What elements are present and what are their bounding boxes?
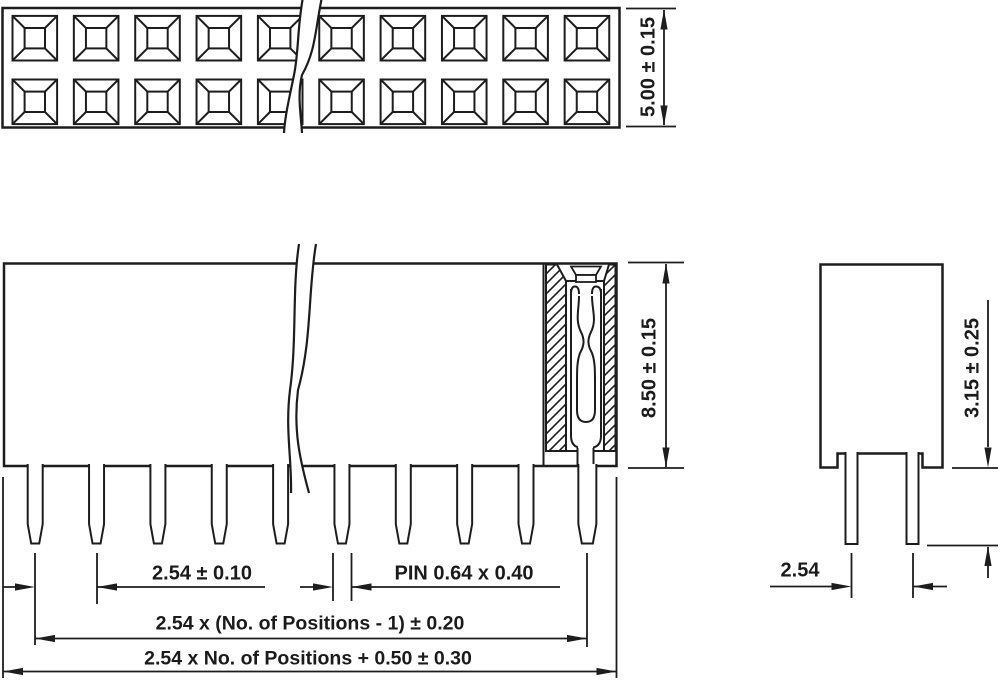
side-pins — [846, 452, 919, 544]
top-view — [3, 0, 620, 133]
socket-opening — [503, 16, 548, 61]
front-view — [4, 244, 617, 544]
dim-label-pin-cross-section: PIN 0.64 x 0.40 — [395, 563, 534, 586]
socket-opening — [565, 16, 610, 61]
side-through-pin — [907, 452, 919, 544]
side-through-pin — [846, 452, 858, 544]
dim-label-body-height: 8.50 ± 0.15 — [639, 318, 662, 418]
through-pin — [396, 464, 411, 544]
socket-opening — [13, 16, 58, 61]
socket-opening — [442, 16, 487, 61]
socket-opening — [74, 80, 119, 125]
side-view — [821, 265, 943, 545]
dim-label-pin-pitch: 2.54 ± 0.10 — [152, 563, 252, 586]
through-pin — [578, 464, 596, 544]
contact-section — [544, 264, 616, 466]
socket-opening — [197, 80, 242, 125]
socket-opening — [381, 16, 426, 61]
side-view-body — [821, 265, 943, 468]
socket-opening — [74, 16, 119, 61]
through-pin — [334, 464, 349, 544]
through-pin — [457, 464, 472, 544]
socket-opening — [135, 16, 180, 61]
socket-opening — [381, 80, 426, 125]
through-pin — [89, 464, 104, 544]
drawing-canvas: 5.00 ± 0.15 8.50 ± 0.15 3.15 ± 0.25 2.54… — [0, 0, 1000, 684]
socket-opening — [197, 16, 242, 61]
through-pin — [519, 464, 534, 544]
through-pin — [28, 464, 43, 544]
through-pin — [273, 464, 288, 544]
dim-label-overall-length: 2.54 x No. of Positions + 0.50 ± 0.30 — [144, 648, 472, 671]
section-entry-chamfer — [571, 267, 601, 276]
section-wall-left — [546, 265, 566, 452]
socket-opening — [565, 80, 610, 125]
socket-opening — [442, 80, 487, 125]
through-pin — [150, 464, 165, 544]
dim-label-pin-protrusion: 3.15 ± 0.25 — [962, 318, 985, 418]
dim-label-row-spacing: 2.54 — [781, 560, 820, 583]
socket-opening — [319, 16, 364, 61]
socket-opening — [135, 80, 180, 125]
socket-opening — [319, 80, 364, 125]
dim-label-top-width: 5.00 ± 0.15 — [638, 17, 661, 117]
socket-opening — [503, 80, 548, 125]
through-pin — [212, 464, 227, 544]
dim-label-span-positions: 2.54 x (No. of Positions - 1) ± 0.20 — [156, 613, 465, 636]
section-wall-right — [604, 265, 616, 452]
front-pins — [28, 464, 597, 544]
socket-opening — [13, 80, 58, 125]
fork-contact — [571, 287, 601, 449]
